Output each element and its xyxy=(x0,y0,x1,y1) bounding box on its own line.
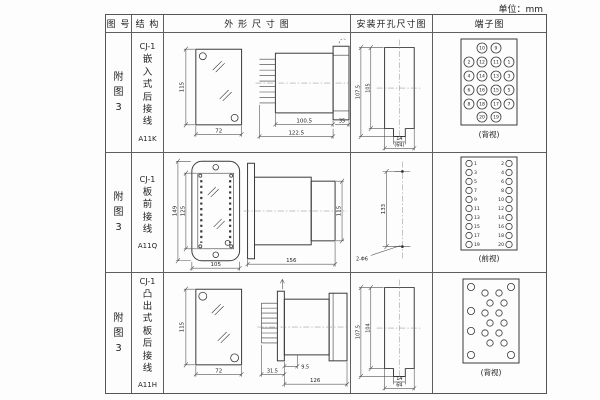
row3-structure-type: 凸出式板后接线 xyxy=(142,289,153,375)
pin: 6 xyxy=(468,87,471,93)
row3-outline-diagram: 115 72 9.5 31.5 126 xyxy=(164,273,350,393)
pin: 6 xyxy=(501,179,504,185)
row1-dim-flange-width: 35 xyxy=(339,118,345,124)
row3-terminal-diagram: (背视) xyxy=(433,273,546,393)
pin: 13 xyxy=(474,215,480,221)
row1-dim-notch: 14 xyxy=(396,135,402,141)
row2-mounting-diagram: 133 2-Φ6 xyxy=(351,153,432,273)
pin: 9 xyxy=(474,197,477,203)
row2-hole-spec-label: 2-Φ6 xyxy=(356,256,368,262)
row1-dim-body-length: 100.5 xyxy=(296,118,312,124)
row2-dim-side-height: 115 xyxy=(337,205,343,215)
pin: 8 xyxy=(468,101,471,107)
row3-outline-cell: 115 72 9.5 31.5 126 xyxy=(164,273,351,393)
row1-terminal-caption: (背视) xyxy=(479,129,500,139)
row2-model: CJ-1 xyxy=(140,175,156,184)
row1-figure-label: 附图3 xyxy=(113,70,125,115)
row3-dim-cutout-width: 64 xyxy=(396,382,402,388)
pin: 1 xyxy=(474,161,477,167)
row2-dim-outer-height: 149 xyxy=(172,205,178,216)
pin: 20 xyxy=(498,242,504,248)
pin: 4 xyxy=(501,170,504,176)
header-cell-figure: 图 号 xyxy=(106,15,132,33)
pin: 17 xyxy=(474,233,480,239)
row2-terminal-diagram: 1 3 5 7 9 11 13 15 17 19 2 4 6 8 10 12 1 xyxy=(433,153,546,273)
row1-code: A11K xyxy=(138,135,156,143)
pin: 12 xyxy=(479,59,485,65)
row1-side-view: 100.5 122.5 35 xyxy=(256,38,350,138)
pin: 10 xyxy=(479,45,485,51)
header-cell-outline: 外 形 尺 寸 图 xyxy=(164,15,351,33)
row1-mounting-cell: 107.5 105 14 (64) xyxy=(351,33,433,153)
row3-figure-label: 附图3 xyxy=(113,311,125,356)
pin: 4 xyxy=(468,73,471,79)
pin: 19 xyxy=(474,242,480,248)
header-cell-structure: 结 构 xyxy=(132,15,164,33)
row1-outline-cell: 115 72 100.5 122.5 35 xyxy=(164,33,351,153)
row3-front-view: 115 72 xyxy=(179,287,243,377)
row3-dim-pins-depth: 31.5 xyxy=(267,368,278,374)
row2-dim-inner-height: 125 xyxy=(180,205,186,215)
pin: 15 xyxy=(493,87,499,93)
pin: 14 xyxy=(498,215,504,221)
row2-outline-cell: 149 125 105 156 115 xyxy=(164,153,351,273)
spec-table: 图 号 结 构 外 形 尺 寸 图 安装开孔尺寸图 端子图 附图3 CJ-1 嵌… xyxy=(105,14,547,394)
header-figure-label: 图 号 xyxy=(107,17,131,30)
pin: 18 xyxy=(498,233,504,239)
row1-dim-front-width: 72 xyxy=(215,128,222,134)
header-cell-terminal: 端子图 xyxy=(433,15,546,33)
header-outline-label: 外 形 尺 寸 图 xyxy=(224,17,289,30)
row2-front-view: 149 125 105 xyxy=(172,158,241,270)
row3-dim-cutout-inner: 104 xyxy=(365,323,371,332)
pin: 14 xyxy=(479,73,485,79)
pin: 13 xyxy=(493,73,499,79)
pin: 3 xyxy=(474,170,477,176)
row3-model: CJ-1 xyxy=(140,277,156,286)
pin: 1 xyxy=(508,59,511,65)
row3-terminal-cell: (背视) xyxy=(433,273,546,393)
row1-structure-type: 嵌入式后接线 xyxy=(142,54,153,128)
row2-side-view: 156 115 xyxy=(244,163,347,266)
row1-dim-front-height: 115 xyxy=(179,81,185,91)
row2-terminal-cell: 1 3 5 7 9 11 13 15 17 19 2 4 6 8 10 12 1 xyxy=(433,153,546,273)
row1-front-view: 115 72 xyxy=(179,46,243,136)
row3-terminal-caption: (背视) xyxy=(481,367,502,377)
row3-mounting-diagram: 107.5 104 14 64 xyxy=(351,273,432,393)
row1-model: CJ-1 xyxy=(140,42,156,51)
header-mounting-label: 安装开孔尺寸图 xyxy=(356,17,426,30)
row3-code: A11H xyxy=(138,381,157,389)
row2-terminal-pins: 1 3 5 7 9 11 13 15 17 19 2 4 6 8 10 12 1 xyxy=(466,160,512,248)
pin: 18 xyxy=(479,101,485,107)
pin: 16 xyxy=(498,224,504,230)
pin: 10 xyxy=(498,197,504,203)
pin: 17 xyxy=(493,101,499,107)
row3-dim-body-length: 126 xyxy=(310,378,321,384)
header-terminal-label: 端子图 xyxy=(474,17,504,30)
row2-figure-label: 附图3 xyxy=(113,190,125,235)
row2-structure-cell: CJ-1 板前接线 A11Q xyxy=(132,153,164,273)
pin: 5 xyxy=(508,87,511,93)
row1-terminal-cell: 10 9 2 12 11 1 4 14 13 3 6 16 15 5 8 18 xyxy=(433,33,546,153)
spec-page: 单位：mm 图 号 结 构 外 形 尺 寸 图 安装开孔尺寸图 端子图 附图3 … xyxy=(0,0,600,400)
row3-side-view: 9.5 31.5 126 xyxy=(257,279,349,386)
row1-dim-cutout-outer: 107.5 xyxy=(355,84,361,98)
row3-dim-notch: 14 xyxy=(396,376,402,382)
row1-dim-cutout-inner: 105 xyxy=(365,83,371,92)
pin: 5 xyxy=(474,179,477,185)
pin: 2 xyxy=(501,161,504,167)
row3-structure-cell: CJ-1 凸出式板后接线 A11H xyxy=(132,273,164,393)
pin: 16 xyxy=(479,87,485,93)
row2-figure-cell: 附图3 xyxy=(106,153,132,273)
row2-dim-front-width: 105 xyxy=(210,262,220,268)
pin: 11 xyxy=(493,59,499,65)
pin: 7 xyxy=(474,188,477,194)
row1-terminal-diagram: 10 9 2 12 11 1 4 14 13 3 6 16 15 5 8 18 xyxy=(433,33,546,153)
row2-dim-hole-distance: 133 xyxy=(381,203,387,214)
header-cell-mounting: 安装开孔尺寸图 xyxy=(351,15,433,33)
row2-code: A11Q xyxy=(138,242,157,250)
pin: 7 xyxy=(508,101,511,107)
row2-outline-diagram: 149 125 105 156 115 xyxy=(164,153,350,273)
row1-dim-total-length: 122.5 xyxy=(288,130,304,136)
row1-dim-cutout-width: (64) xyxy=(394,142,404,148)
row3-dim-step: 9.5 xyxy=(301,364,309,370)
row1-structure-cell: CJ-1 嵌入式后接线 A11K xyxy=(132,33,164,153)
header-structure-label: 结 构 xyxy=(136,17,160,30)
row3-mounting-cell: 107.5 104 14 64 xyxy=(351,273,433,393)
row1-figure-cell: 附图3 xyxy=(106,33,132,153)
pin: 9 xyxy=(495,45,498,51)
pin: 12 xyxy=(498,206,504,212)
pin: 15 xyxy=(474,224,480,230)
row3-dim-front-width: 72 xyxy=(215,368,222,374)
row3-dim-front-height: 115 xyxy=(179,322,185,332)
row3-terminal-pins xyxy=(467,283,514,358)
row3-dim-cutout-outer: 107.5 xyxy=(355,325,361,339)
pin: 8 xyxy=(501,188,504,194)
row1-mounting-diagram: 107.5 105 14 (64) xyxy=(351,33,432,153)
row2-structure-type: 板前接线 xyxy=(142,187,153,236)
pin: 19 xyxy=(493,114,499,120)
pin: 2 xyxy=(468,59,471,65)
pin: 3 xyxy=(508,73,511,79)
row2-mounting-cell: 133 2-Φ6 xyxy=(351,153,433,273)
row2-terminal-caption: (前视) xyxy=(479,253,500,263)
pin: 11 xyxy=(474,206,480,212)
row2-dim-side-length: 156 xyxy=(286,258,297,264)
row1-terminal-pins: 10 9 2 12 11 1 4 14 13 3 6 16 15 5 8 18 xyxy=(464,43,514,122)
row1-outline-diagram: 115 72 100.5 122.5 35 xyxy=(164,33,350,153)
row3-figure-cell: 附图3 xyxy=(106,273,132,393)
pin: 20 xyxy=(479,114,485,120)
